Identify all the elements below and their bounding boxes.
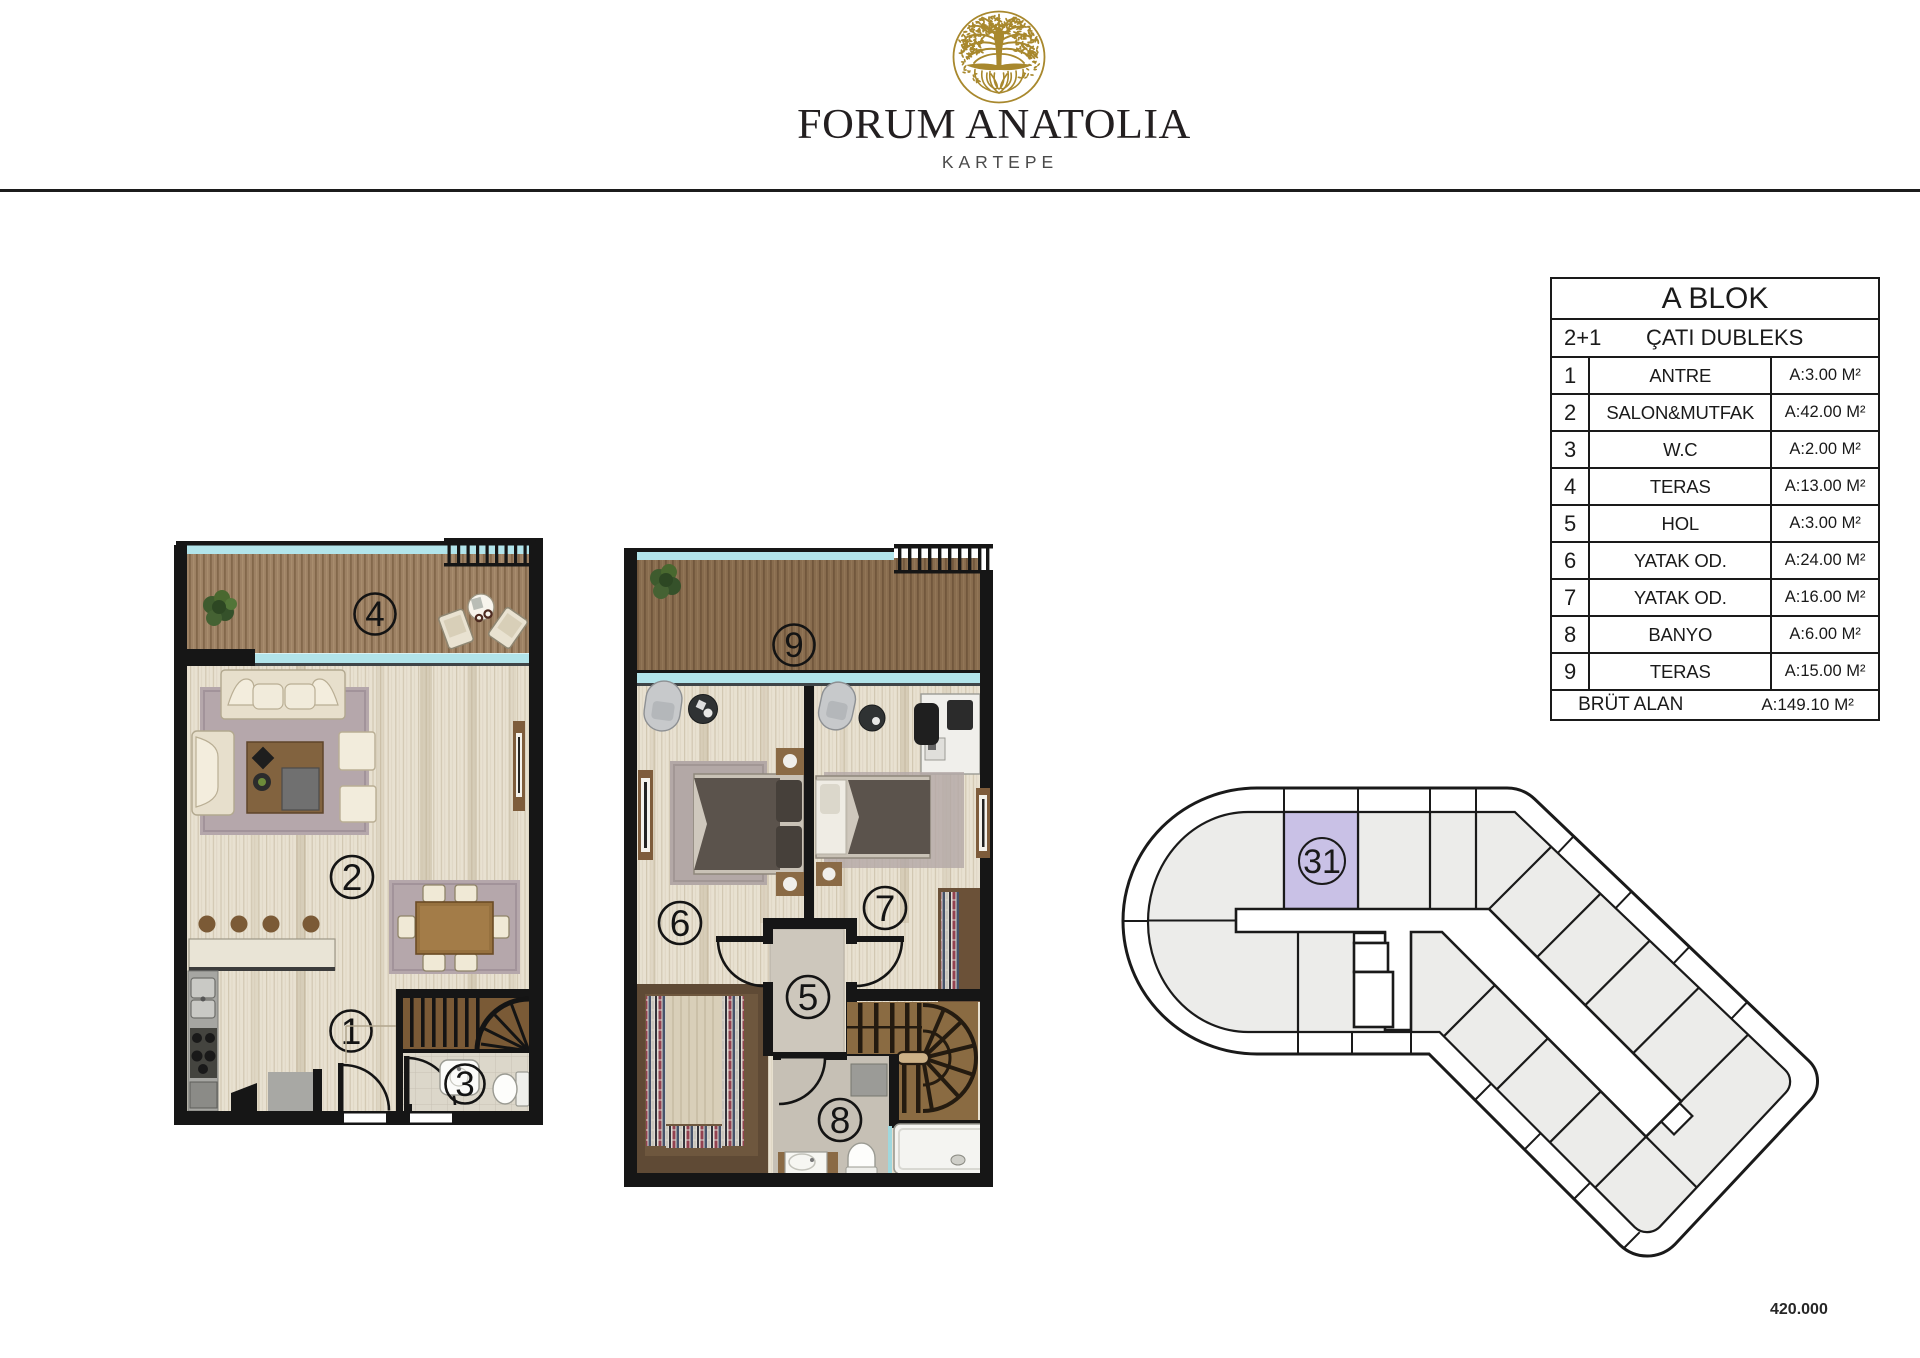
svg-text:9: 9 [784, 626, 803, 665]
svg-text:1: 1 [341, 1011, 362, 1052]
svg-text:7: 7 [875, 888, 896, 929]
svg-text:4: 4 [365, 595, 384, 634]
svg-text:3: 3 [455, 1065, 474, 1104]
svg-text:5: 5 [798, 977, 819, 1018]
svg-text:8: 8 [830, 1100, 851, 1141]
svg-text:2: 2 [342, 857, 363, 898]
svg-text:31: 31 [1303, 843, 1341, 881]
svg-text:6: 6 [670, 903, 691, 944]
